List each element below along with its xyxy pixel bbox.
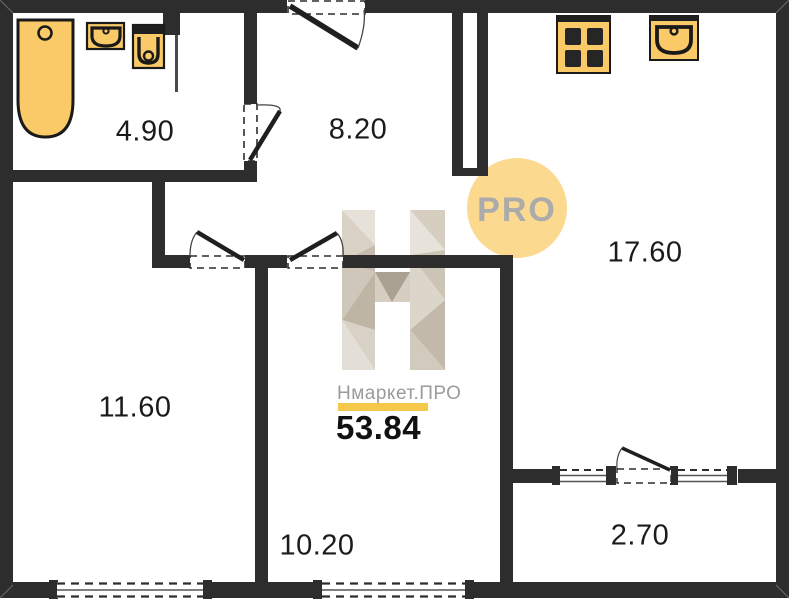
wall-bottom-3	[465, 582, 789, 598]
bedroom-window	[57, 582, 203, 598]
room-label-room: 10.20	[279, 530, 354, 563]
wall-room-living-divider	[500, 255, 513, 582]
duct-wall-bottom	[452, 168, 488, 176]
bedroom-door	[190, 232, 245, 268]
balcony-window-right	[678, 469, 727, 483]
window-post	[49, 580, 58, 599]
room-window	[322, 582, 465, 598]
wall-bedroom-room-divider	[255, 268, 268, 582]
balcony-wall-stub-left	[500, 469, 553, 483]
kitchen-sink-icon	[650, 16, 698, 60]
window-post	[313, 580, 322, 599]
window-post	[727, 466, 737, 485]
window-post	[606, 466, 616, 485]
floor-plan: PRO	[0, 0, 789, 600]
total-area: 53.84	[336, 409, 421, 447]
room-label-bedroom: 11.60	[99, 392, 172, 425]
floor-plan-drawing: PRO	[0, 0, 789, 600]
wall-top-left	[0, 0, 287, 13]
toilet-icon	[133, 25, 164, 68]
wall-right	[776, 0, 789, 598]
stove-icon	[557, 16, 610, 73]
bathroom-door	[244, 104, 280, 161]
wall-left	[0, 0, 13, 598]
room-label-hallway: 8.20	[329, 114, 387, 147]
duct-wall-left	[452, 13, 463, 170]
balcony-door	[617, 448, 671, 483]
balcony-window-left	[560, 469, 606, 483]
faceted-h-logo	[342, 210, 445, 370]
duct-wall-right	[477, 13, 488, 170]
room-label-kitchen-living: 17.60	[607, 237, 682, 270]
room-label-balcony: 2.70	[611, 520, 669, 553]
wall-lower-2	[245, 255, 287, 268]
wall-top-right	[365, 0, 789, 13]
room-door	[288, 233, 343, 268]
balcony-wall-stub-right	[738, 469, 776, 483]
window-post	[465, 580, 474, 599]
wall-bottom-2	[203, 582, 322, 598]
wall-bathroom-bottom	[0, 170, 257, 182]
entrance-door	[288, 1, 365, 48]
room-label-bathroom: 4.90	[116, 116, 174, 149]
brand-text: Нмаркет.ПРО	[337, 383, 461, 405]
bathroom-partition	[175, 35, 178, 92]
wall-lower-1	[152, 255, 190, 268]
wall-lower-3	[343, 255, 513, 268]
bathroom-sink-icon	[87, 23, 124, 49]
wall-bathroom-stub	[163, 13, 180, 35]
window-post	[203, 580, 212, 599]
wall-hallway-left	[244, 13, 257, 105]
pro-badge-label: PRO	[477, 191, 557, 229]
window-post	[552, 466, 560, 485]
bathtub-icon	[18, 20, 73, 137]
